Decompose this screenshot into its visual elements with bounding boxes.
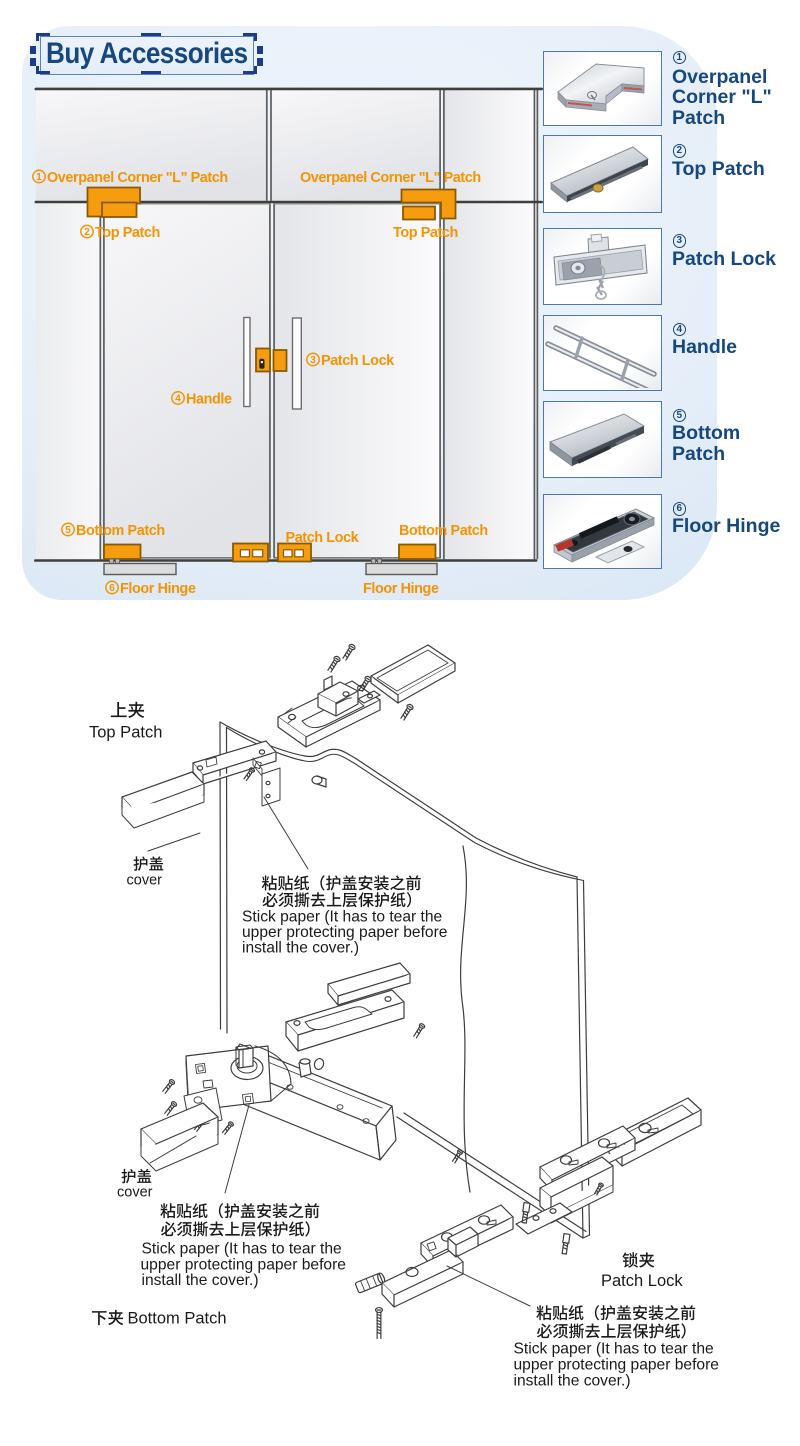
svg-text:5: 5 — [65, 525, 71, 536]
svg-text:Bottom Patch: Bottom Patch — [128, 1310, 227, 1328]
svg-text:2: 2 — [84, 227, 90, 238]
svg-text:Bottom Patch: Bottom Patch — [76, 523, 165, 539]
svg-text:1: 1 — [36, 172, 42, 183]
svg-text:install the cover.): install the cover.) — [142, 1272, 259, 1289]
svg-text:install the cover.): install the cover.) — [242, 939, 359, 956]
svg-text:Handle: Handle — [186, 392, 232, 408]
svg-text:upper protecting paper before: upper protecting paper before — [242, 924, 447, 941]
svg-text:cover: cover — [127, 873, 163, 889]
svg-text:cover: cover — [117, 1185, 153, 1201]
svg-text:Patch Lock: Patch Lock — [601, 1272, 683, 1290]
svg-text:Floor Hinge: Floor Hinge — [120, 581, 196, 597]
svg-text:Stick paper (It has to tear th: Stick paper (It has to tear the — [142, 1240, 342, 1257]
svg-text:Overpanel Corner "L" Patch: Overpanel Corner "L" Patch — [47, 170, 228, 186]
svg-text:Stick paper (It has to tear th: Stick paper (It has to tear the — [514, 1341, 714, 1358]
svg-text:Overpanel Corner "L" Patch: Overpanel Corner "L" Patch — [300, 170, 481, 186]
svg-text:install the cover.): install the cover.) — [514, 1372, 631, 1389]
svg-text:Top Patch: Top Patch — [393, 225, 458, 241]
svg-text:Floor Hinge: Floor Hinge — [363, 581, 439, 597]
svg-text:Bottom Patch: Bottom Patch — [399, 523, 488, 539]
svg-text:Patch Lock: Patch Lock — [321, 353, 395, 369]
svg-text:Stick paper (It has to tear th: Stick paper (It has to tear the — [242, 908, 442, 925]
svg-text:upper protecting paper before: upper protecting paper before — [141, 1256, 346, 1273]
svg-text:4: 4 — [175, 394, 181, 405]
svg-text:3: 3 — [310, 355, 316, 366]
svg-text:Top Patch: Top Patch — [95, 225, 160, 241]
svg-text:6: 6 — [109, 583, 115, 594]
svg-text:Patch Lock: Patch Lock — [286, 530, 360, 546]
svg-text:upper protecting paper before: upper protecting paper before — [514, 1357, 719, 1374]
svg-text:Top Patch: Top Patch — [89, 724, 162, 742]
